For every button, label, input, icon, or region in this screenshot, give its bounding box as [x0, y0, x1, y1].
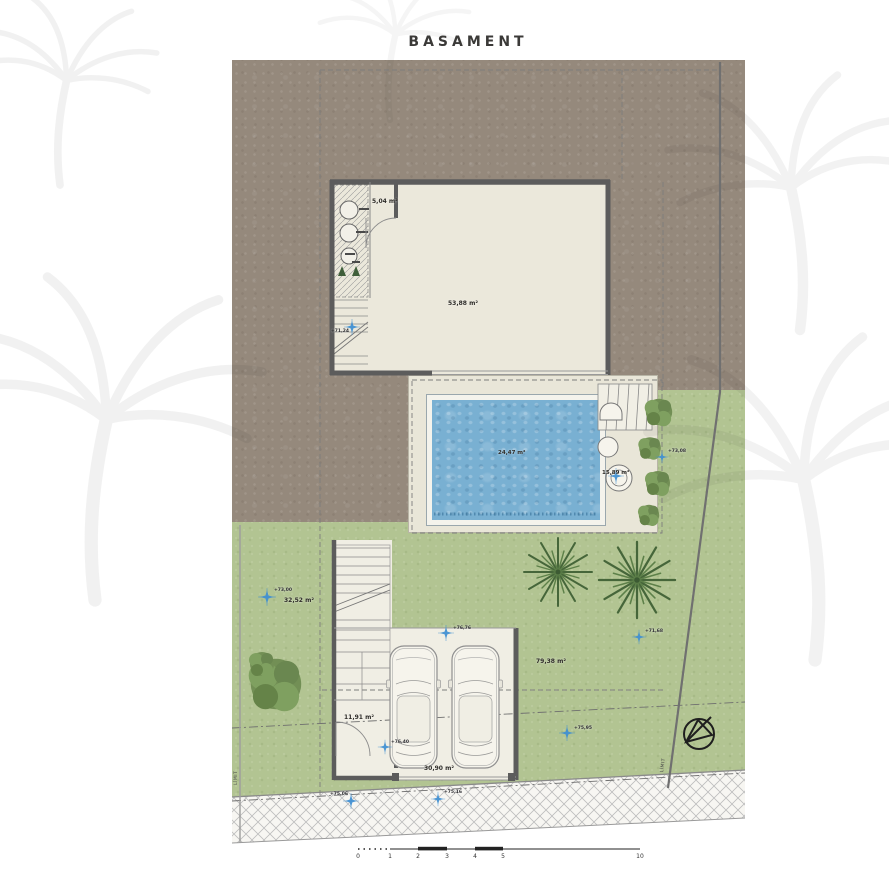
exterior-stairs [334, 545, 390, 700]
area-label-carport: 30,90 m² [424, 765, 454, 772]
scale-tick-4: 4 [473, 853, 477, 860]
area-label-main-room: 53,88 m² [448, 300, 478, 307]
scale-tick-3: 3 [445, 853, 449, 860]
level-label-75-16: +75,16 [444, 790, 462, 795]
area-label-side-yard: 32,52 m² [284, 597, 314, 604]
scale-tick-10: 10 [636, 853, 644, 860]
area-label-entry: 11,91 m² [344, 714, 374, 721]
area-label-pool: 24,47 m² [498, 450, 525, 456]
technical-zone [334, 185, 369, 364]
level-label-76-76: +76,76 [453, 626, 471, 631]
palm-trees-lawn [524, 538, 675, 618]
scale-tick-1: 1 [388, 853, 392, 860]
floor-plan-page: BASAMENT 5,04 m² 53,88 m² 24,47 m² 15,89… [0, 0, 889, 895]
scale-tick-5: 5 [501, 853, 505, 860]
level-label-76-40: +76,40 [391, 740, 409, 745]
tree-bottom-left [249, 652, 302, 711]
palm-watermark-top [320, 0, 469, 120]
basement-walls [330, 180, 610, 375]
area-label-pool-deck: 15,89 m² [602, 470, 629, 476]
area-label-back-yard: 79,38 m² [536, 658, 566, 665]
plan-linework [0, 0, 889, 895]
scale-tick-2: 2 [416, 853, 420, 860]
car-right [449, 646, 503, 768]
scale-bar [358, 847, 640, 851]
level-label-71-24: +71,24 [331, 329, 349, 334]
boundary-label-left: LÍMIT [234, 771, 239, 785]
level-label-75-95: +75,95 [574, 726, 592, 731]
level-label-73-08: +73,08 [668, 449, 686, 454]
level-label-71-68: +71,68 [645, 629, 663, 634]
page-title: BASAMENT [232, 34, 704, 50]
north-arrow [684, 717, 714, 749]
area-label-technical-room: 5,04 m² [372, 198, 398, 205]
level-label-73-00: +73,00 [274, 588, 292, 593]
level-label-75-06: +75,06 [330, 792, 348, 797]
parked-cars [387, 646, 503, 768]
scale-tick-0: 0 [356, 853, 360, 860]
door-swings [336, 218, 396, 756]
palm-watermark-right [648, 75, 889, 660]
palm-watermark-left [0, 0, 262, 600]
car-left [387, 646, 441, 768]
